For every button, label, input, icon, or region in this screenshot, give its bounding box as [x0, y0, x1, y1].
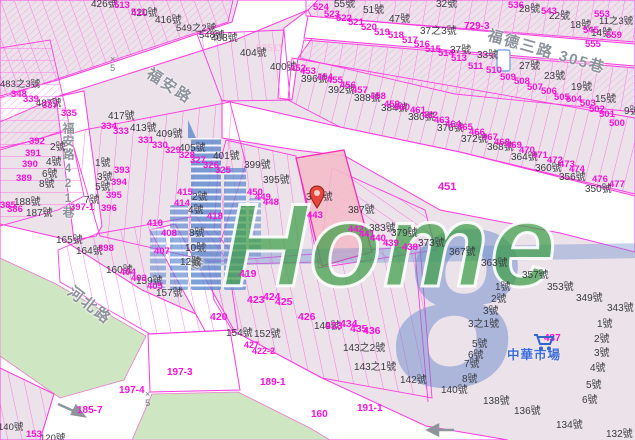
watermark-building-icon [0, 0, 635, 440]
map-canvas[interactable]: 8 Home 福安路福德三路 305巷河北路福安路421巷巷× 5× 50251… [0, 0, 635, 440]
subject-pin-icon[interactable] [304, 182, 336, 212]
market-cart-icon[interactable] [530, 330, 556, 354]
